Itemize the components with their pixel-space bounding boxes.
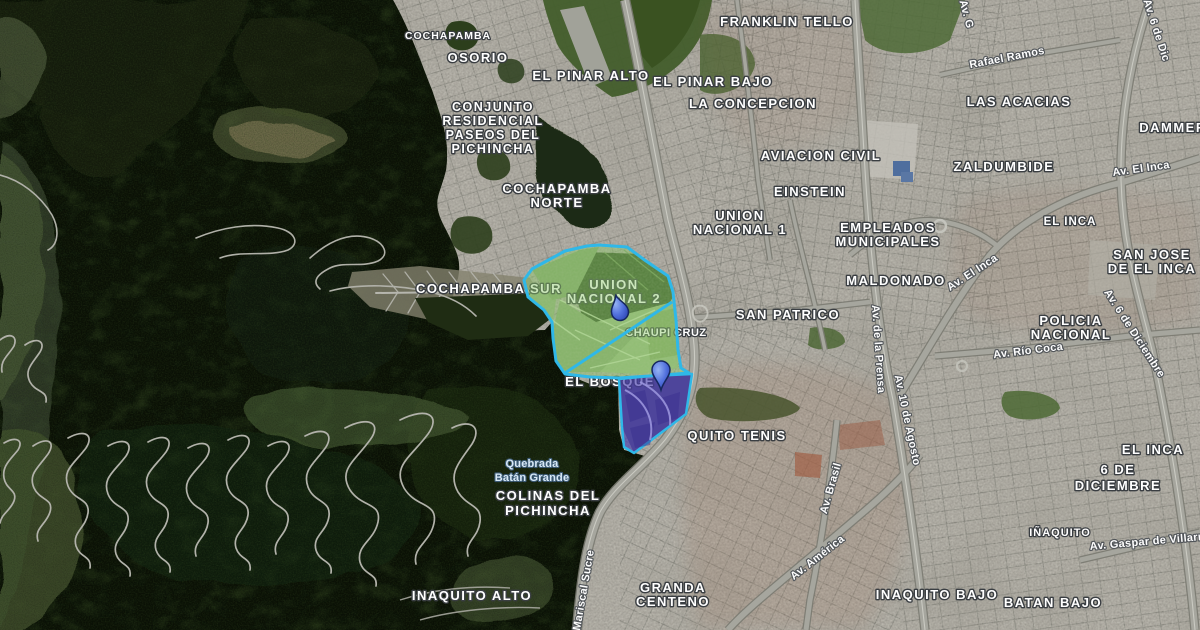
svg-text:Batán Grande: Batán Grande: [495, 472, 570, 484]
svg-text:PASEOS DEL: PASEOS DEL: [446, 128, 541, 142]
svg-text:GRANDA: GRANDA: [640, 580, 706, 595]
svg-text:NORTE: NORTE: [531, 195, 584, 210]
svg-text:6 DE: 6 DE: [1101, 462, 1136, 477]
svg-text:IÑAQUITO: IÑAQUITO: [1029, 526, 1091, 539]
svg-text:RESIDENCIAL: RESIDENCIAL: [442, 114, 543, 128]
svg-text:INAQUITO ALTO: INAQUITO ALTO: [412, 588, 532, 603]
svg-text:MUNICIPALES: MUNICIPALES: [835, 234, 940, 249]
svg-text:DICIEMBRE: DICIEMBRE: [1075, 478, 1161, 493]
svg-text:POLICIA: POLICIA: [1039, 313, 1102, 328]
svg-text:SAN PATRICO: SAN PATRICO: [736, 307, 840, 322]
svg-text:EINSTEIN: EINSTEIN: [774, 184, 846, 199]
svg-text:NACIONAL: NACIONAL: [1031, 327, 1112, 342]
svg-text:EL PINAR BAJO: EL PINAR BAJO: [653, 74, 773, 89]
svg-text:OSORIO: OSORIO: [447, 50, 508, 65]
svg-text:LA CONCEPCION: LA CONCEPCION: [689, 96, 817, 111]
svg-text:CENTENO: CENTENO: [636, 594, 710, 609]
svg-text:QUITO TENIS: QUITO TENIS: [687, 428, 786, 443]
svg-text:EL INCA: EL INCA: [1044, 216, 1097, 228]
svg-text:NACIONAL 1: NACIONAL 1: [693, 222, 787, 237]
svg-text:FRANKLIN TELLO: FRANKLIN TELLO: [720, 14, 854, 29]
svg-text:UNION: UNION: [715, 208, 764, 223]
svg-text:COCHAPAMBA: COCHAPAMBA: [502, 181, 611, 196]
svg-text:AVIACION CIVIL: AVIACION CIVIL: [761, 148, 881, 163]
svg-text:Quebrada: Quebrada: [506, 458, 560, 470]
svg-text:ZALDUMBIDE: ZALDUMBIDE: [954, 159, 1055, 174]
svg-text:PICHINCHA: PICHINCHA: [505, 503, 591, 518]
svg-text:SAN JOSE: SAN JOSE: [1113, 247, 1191, 262]
svg-text:BATAN BAJO: BATAN BAJO: [1004, 595, 1102, 610]
svg-text:EMPLEADOS: EMPLEADOS: [840, 220, 936, 235]
svg-text:EL PINAR ALTO: EL PINAR ALTO: [532, 68, 649, 83]
svg-text:CONJUNTO: CONJUNTO: [452, 100, 534, 114]
svg-text:INAQUITO BAJO: INAQUITO BAJO: [876, 587, 999, 602]
svg-text:DE EL INCA: DE EL INCA: [1108, 261, 1196, 276]
svg-text:LAS ACACIAS: LAS ACACIAS: [967, 94, 1072, 109]
svg-text:MALDONADO: MALDONADO: [846, 273, 945, 288]
svg-text:COCHAPAMBA: COCHAPAMBA: [405, 30, 491, 42]
svg-text:EL INCA: EL INCA: [1122, 442, 1184, 457]
svg-text:PICHINCHA: PICHINCHA: [452, 142, 535, 156]
svg-text:COLINAS DEL: COLINAS DEL: [496, 488, 601, 503]
svg-text:DAMMER: DAMMER: [1139, 120, 1200, 135]
